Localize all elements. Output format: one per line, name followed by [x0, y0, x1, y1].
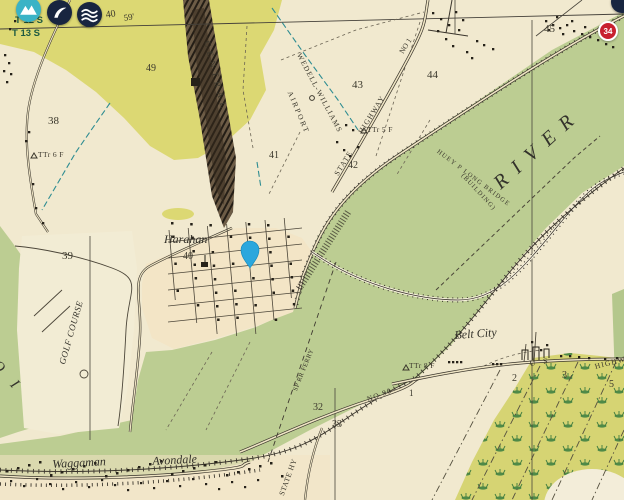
terrain-layer-icon[interactable] — [16, 0, 41, 22]
map-artwork[interactable] — [0, 0, 624, 500]
draw-annotate-icon[interactable] — [47, 0, 72, 25]
marker-badge-value: 34 — [604, 27, 613, 36]
map-viewer: T 12 ST 13 S4059'4938TTr 6 FCENTRALWEDEL… — [0, 0, 624, 500]
marker-badge[interactable]: 34 — [598, 21, 618, 41]
map-layers-icon[interactable] — [77, 2, 102, 27]
golf-course-area — [17, 231, 137, 434]
location-pin[interactable] — [238, 240, 262, 270]
